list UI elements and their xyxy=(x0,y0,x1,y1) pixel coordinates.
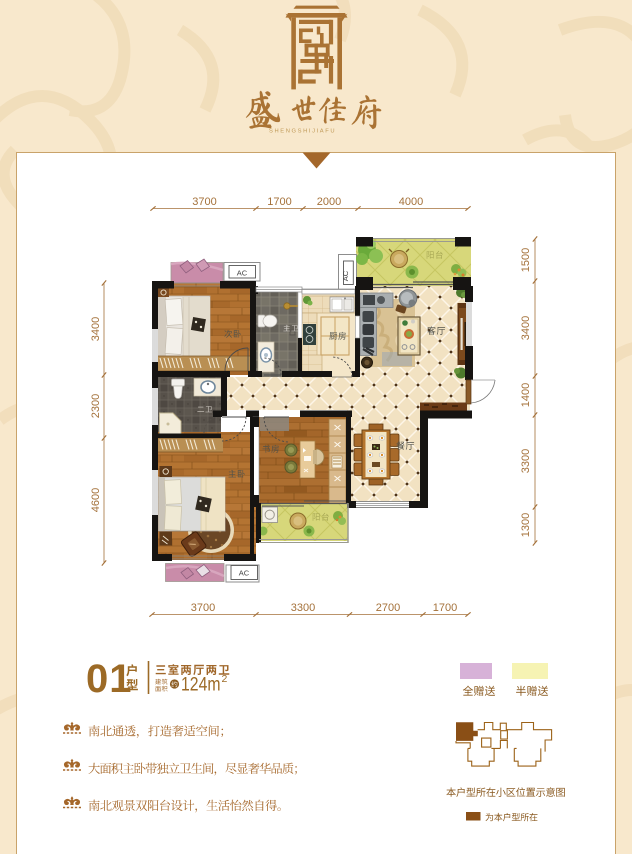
svg-text:1300: 1300 xyxy=(520,513,532,537)
svg-text:AC: AC xyxy=(237,269,248,278)
svg-text:2: 2 xyxy=(222,673,228,685)
svg-text:3300: 3300 xyxy=(520,449,532,473)
svg-text:3300: 3300 xyxy=(291,602,315,614)
svg-text:3700: 3700 xyxy=(191,602,215,614)
svg-text:2300: 2300 xyxy=(90,394,102,418)
svg-text:AC: AC xyxy=(239,569,250,578)
svg-text:2000: 2000 xyxy=(317,196,341,208)
svg-text:3700: 3700 xyxy=(192,196,216,208)
svg-text:SHENGSHIJIAFU: SHENGSHIJIAFU xyxy=(269,129,336,135)
svg-text:1700: 1700 xyxy=(433,602,457,614)
svg-text:3400: 3400 xyxy=(90,317,102,341)
svg-text:4600: 4600 xyxy=(90,488,102,512)
svg-text:1400: 1400 xyxy=(520,383,532,407)
svg-text:3400: 3400 xyxy=(520,316,532,340)
svg-text:2700: 2700 xyxy=(376,602,400,614)
svg-text:01: 01 xyxy=(86,657,133,701)
svg-text:AC: AC xyxy=(341,270,350,281)
svg-text:1500: 1500 xyxy=(520,248,532,272)
svg-text:1700: 1700 xyxy=(267,196,291,208)
svg-text:124m: 124m xyxy=(181,674,221,696)
svg-text:4000: 4000 xyxy=(399,196,423,208)
